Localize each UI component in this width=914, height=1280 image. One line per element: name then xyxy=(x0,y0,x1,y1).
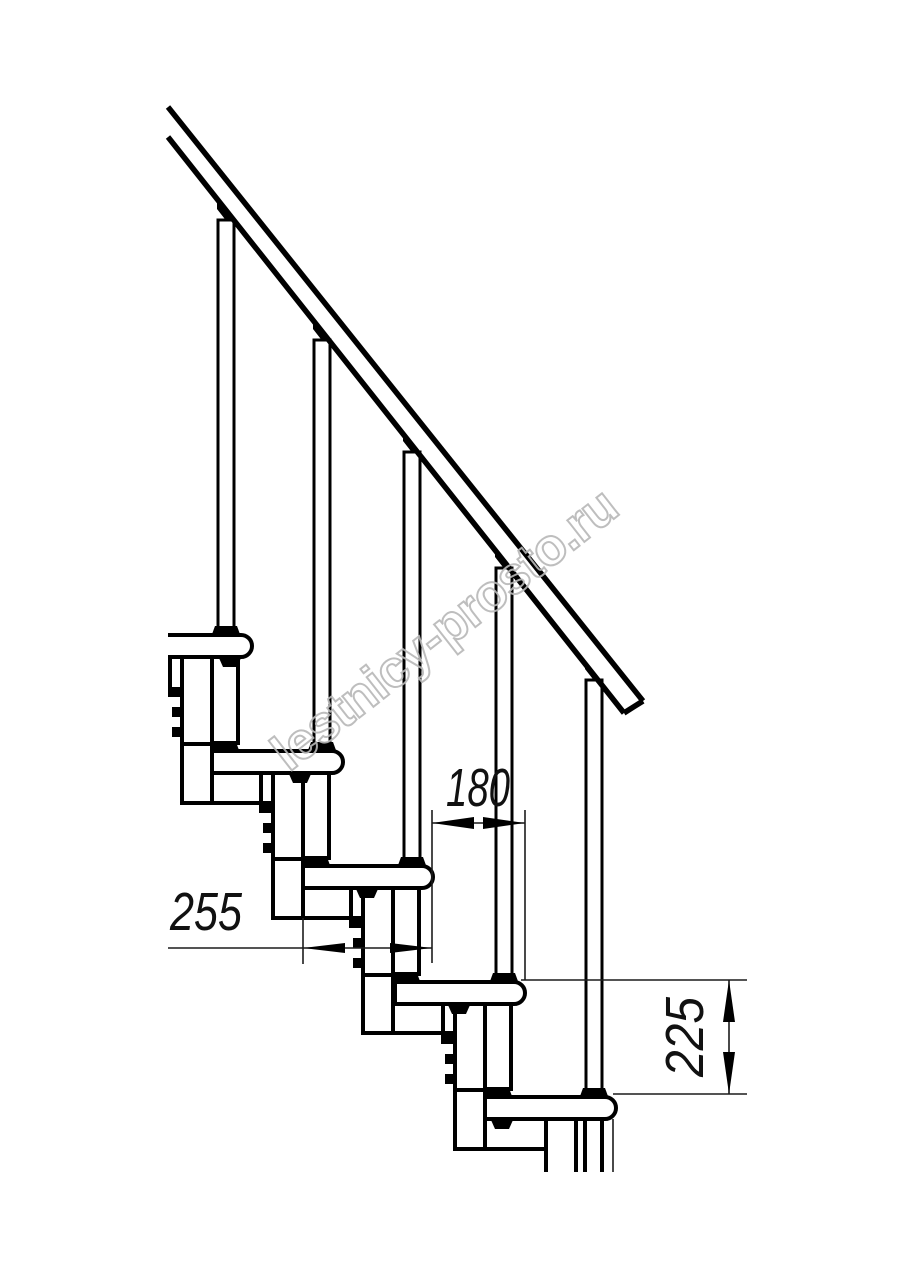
bolt-icon xyxy=(172,727,182,737)
bolt-icon xyxy=(263,823,273,833)
module-post xyxy=(303,773,329,858)
post-foot xyxy=(210,742,240,753)
baluster-1 xyxy=(211,202,241,637)
flange-tab xyxy=(441,1034,455,1044)
dimension-rise: 225 xyxy=(521,980,747,1094)
post-foot xyxy=(391,973,421,984)
step-5 xyxy=(485,1097,616,1119)
drawing-canvas: 180 255 225 lestnicy-prosto.ru xyxy=(0,0,914,1280)
baluster-foot xyxy=(489,973,519,984)
module-post xyxy=(212,657,238,743)
baluster-foot xyxy=(397,857,427,868)
module-post xyxy=(393,888,419,974)
flange-tab xyxy=(168,687,182,697)
staircase-technical-drawing: 180 255 225 lestnicy-prosto.ru xyxy=(0,0,914,1280)
flange-tab xyxy=(259,803,273,813)
bolt-icon xyxy=(353,938,363,948)
bolt-icon xyxy=(263,843,273,853)
arrow-up-icon xyxy=(723,980,735,1022)
bolt-icon xyxy=(445,1074,455,1084)
support-module-3 xyxy=(349,888,454,1033)
post-foot xyxy=(301,857,331,868)
support-module-1 xyxy=(168,657,273,803)
module-plate xyxy=(455,1004,485,1149)
under-step-pad xyxy=(491,1120,513,1129)
module-post xyxy=(485,1004,511,1089)
baluster-5 xyxy=(579,662,609,1099)
bolt-icon xyxy=(353,958,363,968)
baluster-foot xyxy=(211,626,241,637)
bolt-icon xyxy=(172,707,182,717)
baluster-foot xyxy=(579,1088,609,1099)
dimension-rise-value: 225 xyxy=(655,996,715,1078)
handrail-end-cap xyxy=(624,701,643,713)
module-plate xyxy=(363,888,393,1033)
bolt-icon xyxy=(445,1054,455,1064)
module-plate xyxy=(182,657,212,803)
support-module-2 xyxy=(259,773,364,918)
post-foot xyxy=(483,1088,513,1099)
step-4 xyxy=(395,982,525,1004)
support-module-5 xyxy=(546,1119,613,1172)
arrow-down-icon xyxy=(723,1052,735,1094)
step-1 xyxy=(168,635,252,657)
arrow-left-icon xyxy=(303,943,345,953)
module-plate xyxy=(273,773,303,918)
arrow-left-icon xyxy=(432,817,474,829)
dimension-tread-value: 255 xyxy=(169,882,243,942)
step-3 xyxy=(303,866,433,888)
dimension-run-value: 180 xyxy=(446,758,510,818)
flange-tab xyxy=(349,918,363,928)
support-module-4 xyxy=(441,1004,546,1149)
